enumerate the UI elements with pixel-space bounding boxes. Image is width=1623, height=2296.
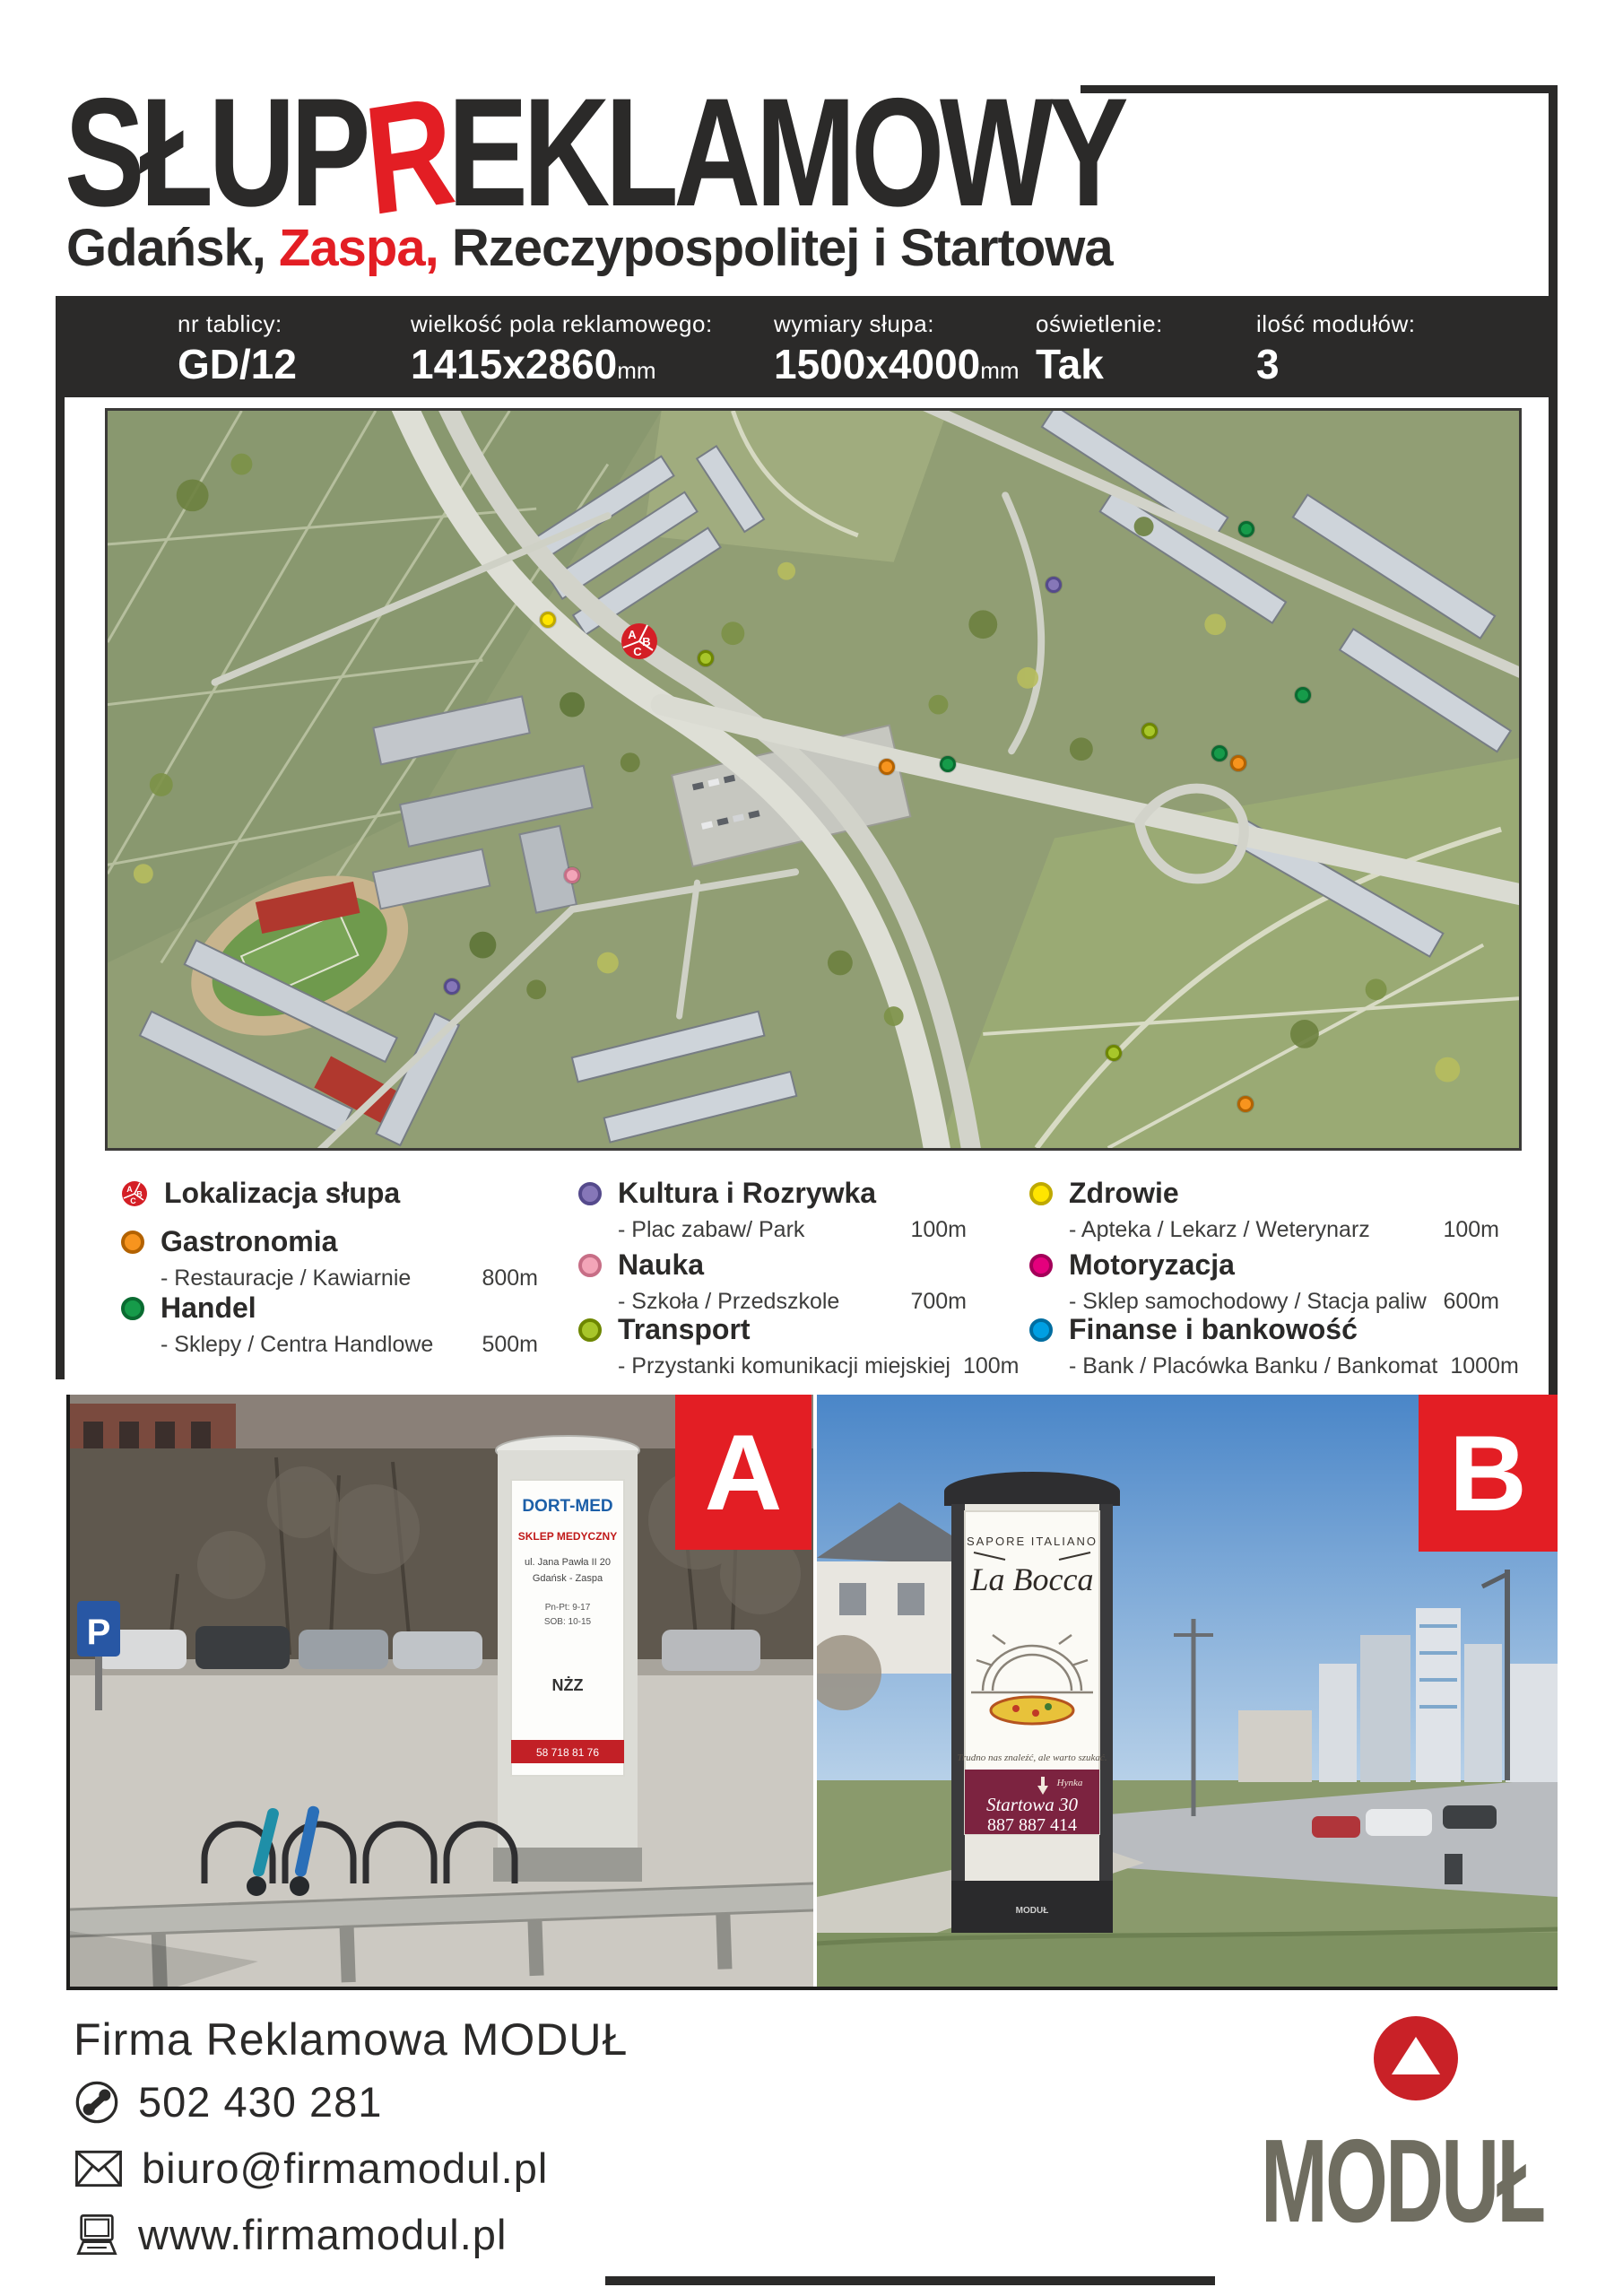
spec-label: ilość modułów:: [1256, 310, 1416, 338]
photo-a-poster-line2: Gdańsk - Zaspa: [533, 1573, 603, 1584]
legend-distance: 600m: [1430, 1289, 1499, 1315]
legend-item-nauka: Nauka - Szkoła / Przedszkole700m: [578, 1248, 967, 1315]
flyer-page: SŁUPREKLAMOWY Gdańsk, Zaspa, Rzeczypospo…: [0, 0, 1623, 2296]
legend-item-handel: Handel - Sklepy / Centra Handlowe500m: [121, 1291, 538, 1358]
photo-a-poster-heading: SKLEP MEDYCZNY: [518, 1530, 617, 1543]
bottom-rule: [605, 2276, 1215, 2285]
legend-distance: 100m: [1430, 1217, 1499, 1243]
page-title: SŁUPREKLAMOWY: [65, 75, 1124, 230]
phone-row: 502 430 281: [74, 2077, 382, 2126]
spec-value-text: GD/12: [178, 341, 297, 387]
badge-b-letter: B: [1449, 1412, 1527, 1535]
poi-dot: [1046, 577, 1062, 593]
legend-subtitle: - Apteka / Lekarz / Weterynarz: [1069, 1217, 1370, 1243]
legend-title: Zdrowie: [1069, 1177, 1179, 1210]
legend-subtitle: - Restauracje / Kawiarnie: [161, 1265, 411, 1291]
legend-title: Nauka: [618, 1248, 704, 1282]
marker-letter-b: B: [136, 1189, 143, 1198]
poi-dot: [1141, 723, 1158, 739]
poi-dot: [1238, 521, 1254, 537]
subtitle-district: Zaspa,: [279, 219, 438, 277]
legend-subtitle: - Przystanki komunikacji miejskiej: [618, 1353, 950, 1379]
subtitle-city: Gdańsk,: [66, 219, 279, 277]
photo-a-poster-line1: ul. Jana Pawła II 20: [525, 1557, 611, 1568]
photo-b-poster-phone: 887 887 414: [987, 1815, 1077, 1835]
legend-title: Finanse i bankowość: [1069, 1313, 1358, 1346]
legend-item-motoryzacja: Motoryzacja - Sklep samochodowy / Stacja…: [1029, 1248, 1499, 1315]
photo-b-badge: B: [1419, 1395, 1558, 1552]
spec-value-text: 3: [1256, 341, 1280, 387]
photo-a-poster-phone: 58 718 81 76: [536, 1746, 599, 1759]
legend-distance: 700m: [898, 1289, 967, 1315]
category-dot: [578, 1254, 602, 1277]
legend-subtitle: - Bank / Placówka Banku / Bankomat: [1069, 1353, 1437, 1379]
marker-letter-c: C: [130, 1196, 136, 1205]
column-location-marker: ABC: [620, 622, 659, 661]
title-part-slup: SŁUP: [65, 66, 366, 239]
photo-b-column-brand: MODUŁ: [1016, 1906, 1049, 1916]
poi-dot: [1106, 1045, 1122, 1061]
phone-number: 502 430 281: [138, 2077, 382, 2126]
subtitle-street: Rzeczypospolitej i Startowa: [438, 219, 1113, 277]
poi-dot: [940, 756, 956, 772]
poi-dot: [564, 867, 580, 883]
legend-title: Gastronomia: [161, 1225, 337, 1258]
poi-layer: ABC: [108, 411, 1519, 1148]
photo-a-badge: A: [675, 1395, 811, 1550]
poi-dot: [1230, 755, 1246, 771]
spec-value: 1415x2860mm: [411, 340, 713, 388]
parking-sign: P: [87, 1613, 111, 1652]
legend-title: Handel: [161, 1291, 256, 1325]
spec-label: wymiary słupa:: [774, 310, 1020, 338]
spec-bar: nr tablicy: GD/12 wielkość pola reklamow…: [56, 296, 1558, 397]
spec-modules: ilość modułów: 3: [1256, 310, 1416, 388]
legend-distance: 500m: [469, 1332, 538, 1358]
legend-distance: 1000m: [1437, 1353, 1518, 1379]
legend-item-transport: Transport - Przystanki komunikacji miejs…: [578, 1313, 967, 1379]
location-marker-icon: A B C: [121, 1180, 148, 1207]
legend-item-gastronomia: Gastronomia - Restauracje / Kawiarnie800…: [121, 1225, 538, 1291]
legend-distance: 800m: [469, 1265, 538, 1291]
spec-value-text: 1415x2860: [411, 341, 617, 387]
spec-label: oświetlenie:: [1036, 310, 1163, 338]
spec-label: nr tablicy:: [178, 310, 297, 338]
phone-icon: [74, 2079, 120, 2126]
spec-ad-field-size: wielkość pola reklamowego: 1415x2860mm: [411, 310, 713, 388]
spec-value: 1500x4000mm: [774, 340, 1020, 388]
spec-unit: mm: [980, 357, 1019, 384]
category-dot: [1029, 1318, 1053, 1342]
spec-board-number: nr tablicy: GD/12: [178, 310, 297, 388]
legend-title: Motoryzacja: [1069, 1248, 1235, 1282]
email-icon: [74, 2145, 124, 2192]
photo-b-poster-top: SAPORE ITALIANO: [967, 1535, 1098, 1548]
svg-text:C: C: [634, 645, 643, 658]
photo-a-poster-brand: DORT-MED: [522, 1497, 612, 1516]
top-right-rule: [1081, 85, 1558, 93]
spec-label: wielkość pola reklamowego:: [411, 310, 713, 338]
company-name: Firma Reklamowa MODUŁ: [74, 2013, 628, 2066]
email-address: biuro@firmamodul.pl: [142, 2144, 548, 2193]
title-part-eklamowy: EKLAMOWY: [447, 66, 1124, 239]
spec-value: GD/12: [178, 340, 297, 388]
photo-b-poster-street: Hynka: [1056, 1778, 1083, 1788]
category-dot: [121, 1297, 144, 1320]
modul-logo-text: MODUŁ: [1261, 2113, 1543, 2248]
legend-title: Lokalizacja słupa: [164, 1177, 400, 1210]
legend-distance: 100m: [898, 1217, 967, 1243]
legend-distance: 100m: [950, 1353, 1020, 1379]
legend-item-lokalizacja: A B C Lokalizacja słupa: [121, 1177, 538, 1210]
spec-value: 3: [1256, 340, 1416, 388]
poi-dot: [1211, 745, 1228, 761]
title-red-r: R: [360, 73, 456, 239]
photo-b-poster-address: Startowa 30: [986, 1794, 1079, 1815]
website-computer-icon: [74, 2212, 120, 2258]
modul-logo-icon: [1374, 2016, 1458, 2100]
legend-subtitle: - Sklep samochodowy / Stacja paliw: [1069, 1289, 1427, 1315]
category-dot: [578, 1182, 602, 1205]
svg-text:A: A: [629, 628, 638, 641]
photo-strip: DORT-MED SKLEP MEDYCZNY ul. Jana Pawła I…: [66, 1395, 1558, 1990]
category-dot: [1029, 1182, 1053, 1205]
legend-subtitle: - Sklepy / Centra Handlowe: [161, 1332, 433, 1358]
email-row: biuro@firmamodul.pl: [74, 2144, 548, 2193]
poi-dot: [1295, 687, 1311, 703]
satellite-map: ABC: [105, 408, 1522, 1151]
poi-dot: [1237, 1096, 1254, 1112]
website-row: www.firmamodul.pl: [74, 2210, 507, 2259]
map-legend: A B C Lokalizacja słupa Gastronomia - Re…: [56, 1166, 1558, 1390]
legend-item-finanse: Finanse i bankowość - Bank / Placówka Ba…: [1029, 1313, 1499, 1379]
logo-triangle: [1392, 2037, 1440, 2074]
legend-subtitle: - Plac zabaw/ Park: [618, 1217, 804, 1243]
spec-lighting: oświetlenie: Tak: [1036, 310, 1163, 388]
spec-column-size: wymiary słupa: 1500x4000mm: [774, 310, 1020, 388]
photo-b-poster-brand: La Bocca: [970, 1561, 1094, 1597]
spec-unit: mm: [617, 357, 655, 384]
poi-dot: [879, 759, 895, 775]
website-url: www.firmamodul.pl: [138, 2210, 507, 2259]
legend-item-kultura: Kultura i Rozrywka - Plac zabaw/ Park100…: [578, 1177, 967, 1243]
category-dot: [578, 1318, 602, 1342]
spec-value-text: Tak: [1036, 341, 1104, 387]
advertising-column: SAPORE ITALIANO La Bocca Trudno nas znal…: [944, 1472, 1120, 1933]
legend-title: Kultura i Rozrywka: [618, 1177, 876, 1210]
category-dot: [1029, 1254, 1053, 1277]
location-subtitle: Gdańsk, Zaspa, Rzeczypospolitej i Starto…: [66, 218, 1113, 278]
badge-a-letter: A: [705, 1411, 783, 1535]
photo-b-poster-tagline: Trudno nas znaleźć, ale warto szukać.: [957, 1752, 1107, 1763]
marker-letter-a: A: [126, 1185, 133, 1194]
category-dot: [121, 1231, 144, 1254]
poi-dot: [698, 650, 714, 666]
photo-a-poster-hours2: SOB: 10-15: [544, 1617, 592, 1627]
photo-a-poster-logo: NŻZ: [552, 1676, 584, 1694]
photo-a-poster-hours1: Pn-Pt: 9-17: [545, 1603, 591, 1613]
svg-text:B: B: [643, 635, 651, 648]
spec-value: Tak: [1036, 340, 1163, 388]
legend-title: Transport: [618, 1313, 751, 1346]
spec-value-text: 1500x4000: [774, 341, 980, 387]
poi-dot: [540, 612, 556, 628]
poi-dot: [444, 978, 460, 995]
legend-subtitle: - Szkoła / Przedszkole: [618, 1289, 839, 1315]
legend-item-zdrowie: Zdrowie - Apteka / Lekarz / Weterynarz10…: [1029, 1177, 1499, 1243]
